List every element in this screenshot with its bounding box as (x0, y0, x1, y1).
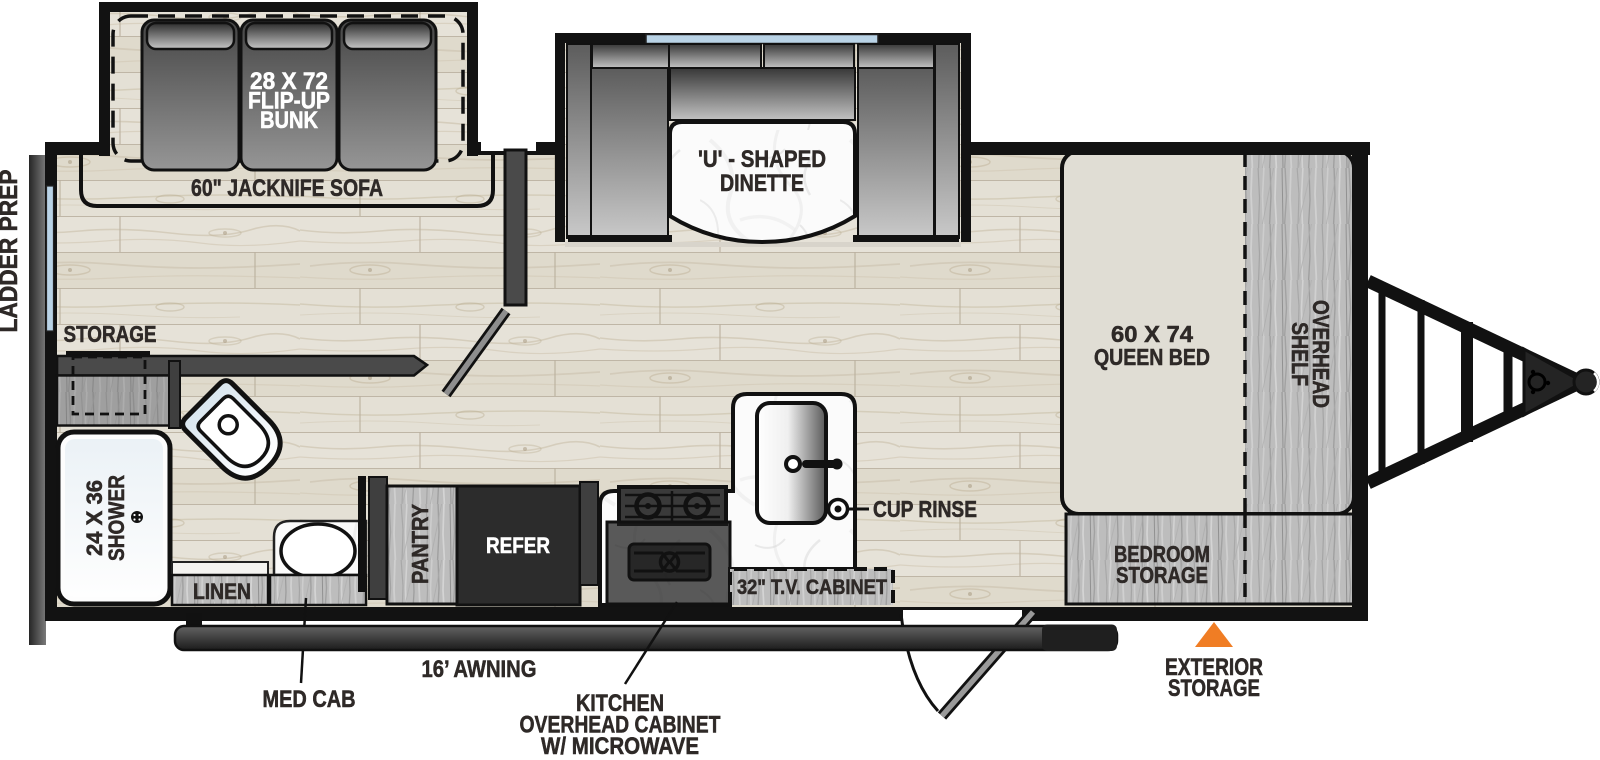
svg-text:STORAGE: STORAGE (1116, 562, 1208, 588)
svg-text:DINETTE: DINETTE (720, 170, 804, 197)
svg-text:32" T.V. CABINET: 32" T.V. CABINET (737, 576, 887, 599)
svg-text:BUNK: BUNK (260, 107, 319, 134)
svg-text:STORAGE: STORAGE (64, 321, 157, 347)
svg-text:CUP RINSE: CUP RINSE (873, 496, 977, 522)
svg-text:SHOWER: SHOWER (104, 475, 129, 561)
svg-text:REFER: REFER (486, 533, 550, 558)
svg-text:QUEEN BED: QUEEN BED (1094, 344, 1210, 370)
svg-text:LADDER PREP: LADDER PREP (0, 170, 23, 333)
svg-text:MED CAB: MED CAB (263, 686, 356, 713)
svg-text:'U' - SHAPED: 'U' - SHAPED (698, 146, 826, 173)
svg-text:60" JACKNIFE SOFA: 60" JACKNIFE SOFA (191, 175, 383, 202)
svg-text:LINEN: LINEN (193, 579, 251, 604)
svg-text:STORAGE: STORAGE (1168, 675, 1260, 702)
svg-text:PANTRY: PANTRY (407, 504, 433, 584)
svg-text:16’ AWNING: 16’ AWNING (422, 656, 537, 683)
svg-text:W/ MICROWAVE: W/ MICROWAVE (541, 733, 699, 755)
svg-text:SHELF: SHELF (1287, 322, 1313, 386)
